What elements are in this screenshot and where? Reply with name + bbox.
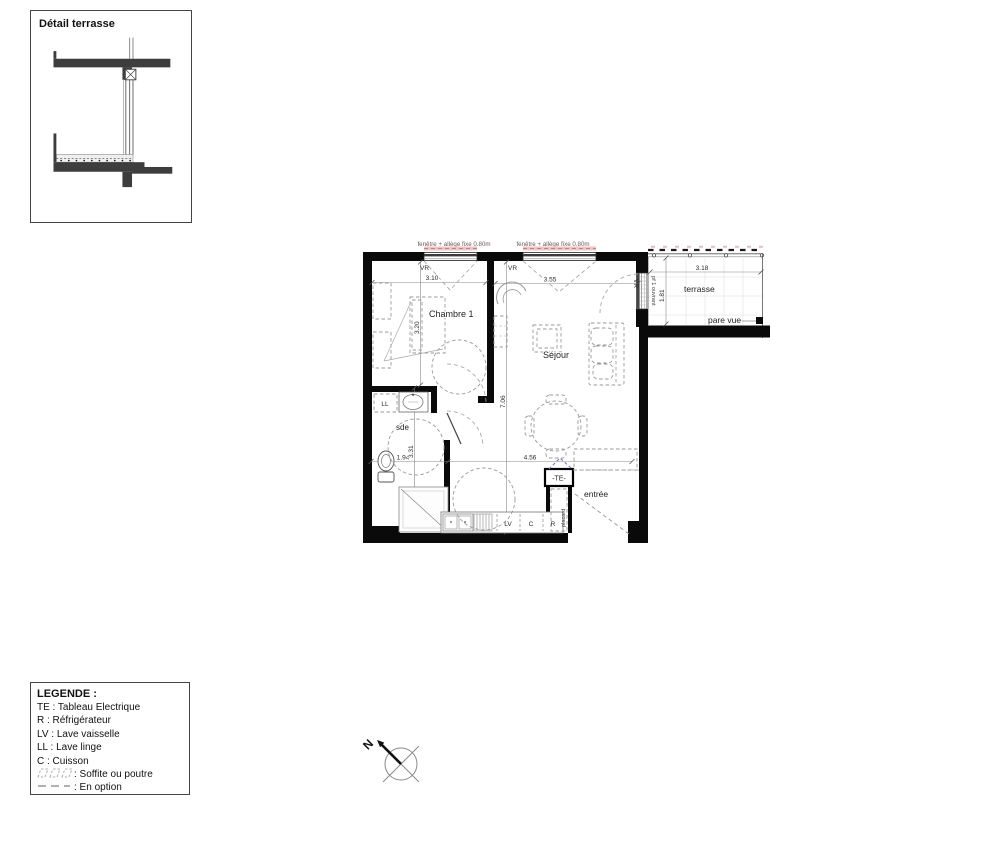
terrace-section-drawing bbox=[31, 30, 189, 212]
washbasin bbox=[399, 392, 428, 412]
floorplan-page: Détail terrasse bbox=[0, 0, 1000, 857]
legend-item-ll: LL : Lave linge bbox=[37, 741, 183, 754]
armchair bbox=[497, 282, 526, 304]
dim-sejour-width: 3.55 bbox=[544, 277, 557, 284]
label-lv: LV bbox=[504, 521, 512, 528]
toilet bbox=[378, 451, 394, 482]
dim-kitchen-width: 4.56 bbox=[524, 455, 537, 462]
label-c: C bbox=[529, 521, 534, 528]
label-r: R bbox=[551, 521, 556, 528]
legend-soffite-text: : Soffite ou poutre bbox=[74, 768, 153, 781]
dim-terrasse-width: 3.18 bbox=[696, 265, 709, 272]
dim-chambre-width: 3.10 bbox=[426, 275, 439, 282]
label-ll: LL bbox=[381, 401, 389, 408]
vr-label-right: VR bbox=[508, 265, 517, 272]
room-label-sejour: Séjour bbox=[543, 350, 569, 360]
dim-terrasse-height: 1.81 bbox=[659, 289, 666, 302]
option-dash-icon bbox=[37, 780, 73, 792]
legend-item-lv: LV : Lave vaisselle bbox=[37, 728, 183, 741]
vr-label-terrace: VR bbox=[632, 279, 639, 288]
legend-item-r: R : Réfrigérateur bbox=[37, 714, 183, 727]
sofa bbox=[589, 323, 624, 385]
dining-table bbox=[525, 395, 587, 458]
label-te: -TE- bbox=[552, 476, 566, 483]
room-label-sde: sde bbox=[396, 423, 409, 432]
room-label-chambre: Chambre 1 bbox=[429, 309, 474, 319]
dim-chambre-height: 3.20 bbox=[414, 321, 421, 334]
window-marker-strips bbox=[424, 247, 596, 251]
legend-option-text: : En option bbox=[74, 781, 122, 794]
pf-ouvrant-label: pf 1 ouvrant bbox=[650, 276, 656, 306]
sde-fixtures bbox=[374, 392, 483, 532]
dim-sejour-height: 7.06 bbox=[500, 395, 507, 408]
legend-item-option: : En option bbox=[37, 781, 183, 794]
room-label-entree: entrée bbox=[584, 489, 608, 499]
vr-label-left: VR bbox=[420, 265, 429, 272]
blue-duct-line bbox=[549, 458, 572, 469]
label-pare-vue: pare vue bbox=[708, 315, 741, 325]
turning-circle-chambre bbox=[432, 340, 486, 394]
soffite-zone bbox=[574, 449, 637, 470]
window-swing-sejour bbox=[523, 261, 596, 292]
window-chambre bbox=[424, 253, 477, 261]
legend-item-te: TE : Tableau Electrique bbox=[37, 701, 183, 714]
room-label-terrasse: terrasse bbox=[684, 284, 715, 294]
chambre-furniture bbox=[373, 283, 486, 394]
apartment-floorplan: fenêtre + allège fixe 0.80m fenêtre + al… bbox=[355, 238, 785, 548]
north-compass: N bbox=[362, 734, 426, 798]
label-placard: placard bbox=[561, 509, 567, 527]
tv-unit bbox=[494, 316, 507, 347]
sde-door-swing bbox=[447, 411, 483, 447]
sde-door-leaf bbox=[447, 413, 461, 444]
legend-title: LEGENDE : bbox=[37, 688, 183, 700]
soffite-hatch-icon bbox=[37, 767, 73, 779]
window-sejour bbox=[523, 253, 596, 261]
detail-terrasse-title: Détail terrasse bbox=[31, 11, 191, 30]
entry-door-swing bbox=[575, 494, 629, 534]
compass-north-letter: N bbox=[362, 736, 376, 752]
dim-sde-height: 3.31 bbox=[408, 445, 415, 458]
sejour-furniture bbox=[494, 282, 624, 458]
legend-panel: LEGENDE : TE : Tableau Electrique R : Ré… bbox=[30, 682, 190, 795]
kitchen-drainer bbox=[474, 514, 492, 531]
detail-terrasse-panel: Détail terrasse bbox=[30, 10, 192, 223]
